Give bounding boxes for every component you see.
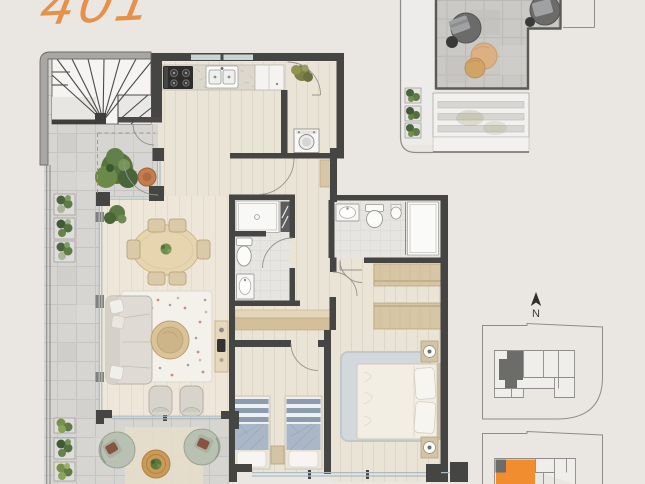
svg-text:N: N bbox=[532, 308, 540, 320]
svg-text:401: 401 bbox=[36, 0, 162, 38]
